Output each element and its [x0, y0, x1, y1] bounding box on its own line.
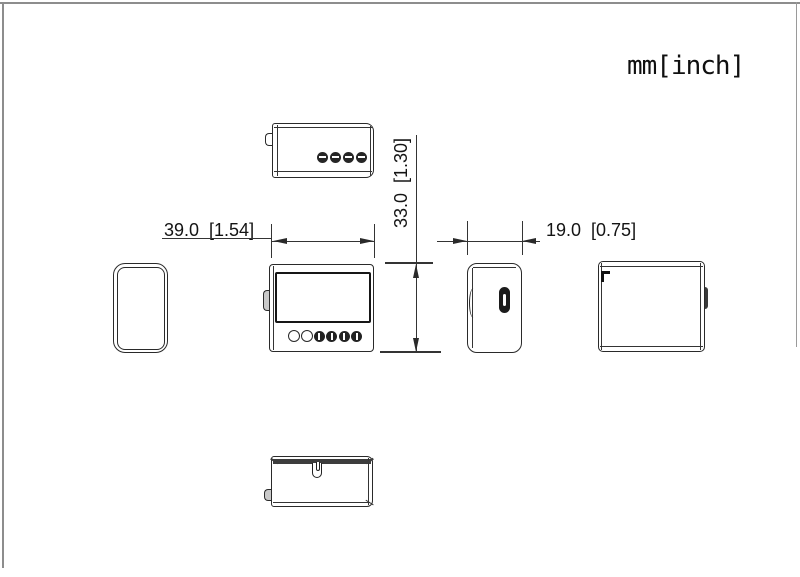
- dim-height-ext-line-bottom: [380, 351, 441, 352]
- top-view-inner-left-line: [277, 125, 278, 176]
- back-view-inner-bottom-line: [600, 346, 703, 347]
- dim-width-leader-line: [162, 238, 272, 239]
- bottom-view-inner-right-line: [368, 458, 369, 505]
- dim-height-dim-line: [416, 135, 417, 352]
- screw-terminal-top-1: [317, 152, 328, 163]
- screw-terminal-front-3: [339, 331, 350, 342]
- dim-height-arrow-up-icon: [413, 264, 419, 278]
- dim-depth-arrow-right-icon: [522, 238, 536, 244]
- top-view-inner-right-line: [370, 126, 371, 176]
- dim-width-arrow-right-icon: [360, 238, 374, 244]
- left-side-view-inner-outline: [117, 267, 165, 350]
- screw-slot-icon: [345, 156, 352, 158]
- top-view-inner-top-line: [274, 127, 372, 128]
- screw-slot-icon: [343, 333, 345, 340]
- front-view-display: [275, 272, 371, 323]
- front-led-indicator-1: [288, 330, 300, 342]
- screw-slot-icon: [331, 333, 333, 340]
- side-button-slot-inner: [503, 294, 506, 306]
- page-border-left: [2, 2, 4, 568]
- dimension-drawing-page: mm[inch] 39.0 [1.54] 19.0 [0.75] 33.0 [1…: [0, 0, 800, 577]
- screw-terminal-front-4: [351, 331, 362, 342]
- screw-terminal-top-3: [343, 152, 354, 163]
- front-led-indicator-2: [301, 330, 313, 342]
- screw-slot-icon: [318, 333, 320, 340]
- front-view-inner-left-line: [273, 266, 274, 350]
- dim-height-arrow-down-icon: [413, 338, 419, 352]
- side-clip-curve: [469, 288, 478, 318]
- dim-width-arrow-left-icon: [273, 238, 287, 244]
- screw-slot-icon: [319, 156, 326, 158]
- side-button-slot: [499, 287, 510, 313]
- screw-terminal-top-4: [356, 152, 367, 163]
- dim-height-label: 33.0 [1.30]: [393, 135, 409, 231]
- screw-terminal-front-1: [314, 331, 325, 342]
- screw-slot-icon: [332, 156, 339, 158]
- bottom-view-inner-bottom-line: [273, 502, 370, 503]
- screw-slot-icon: [358, 156, 365, 158]
- back-view-clip-mark-horizontal: [601, 271, 610, 274]
- top-view-inner-bottom-line: [274, 171, 372, 172]
- back-view-inner-top-line: [600, 266, 703, 267]
- bottom-keyhole-pin: [316, 462, 320, 471]
- dim-depth-label: 19.0 [0.75]: [546, 221, 636, 239]
- dim-height-ext-line-top: [385, 262, 433, 263]
- screw-slot-icon: [356, 333, 358, 340]
- page-border-right: [796, 2, 798, 347]
- back-view-inner-right-line: [700, 263, 701, 350]
- screw-terminal-top-2: [330, 152, 341, 163]
- screw-terminal-front-2: [326, 331, 337, 342]
- dim-depth-arrow-left-icon: [453, 238, 467, 244]
- back-view-outline: [598, 261, 705, 352]
- units-label: mm[inch]: [627, 52, 744, 81]
- right-side-view-inner-top-line: [473, 267, 516, 268]
- dim-width-label: 39.0 [1.54]: [164, 221, 254, 239]
- top-view-outline: [272, 123, 374, 178]
- page-border-top: [0, 2, 800, 4]
